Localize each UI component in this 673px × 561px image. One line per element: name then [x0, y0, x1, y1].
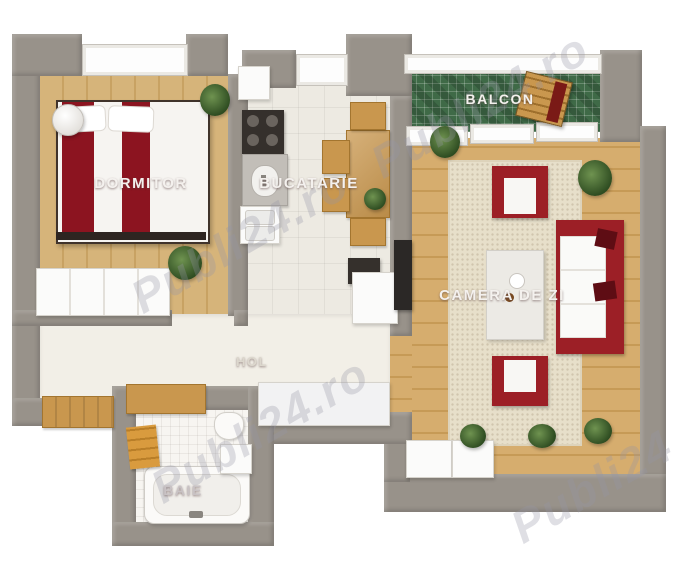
fridge — [238, 66, 270, 100]
sofa-pillow-2 — [593, 281, 617, 302]
dining-chair-left-1 — [322, 140, 350, 174]
lounger-blanket — [546, 81, 567, 123]
plant-living-bottom-2 — [528, 424, 556, 448]
tv-wall-mounted — [394, 240, 412, 310]
balcony-door-2 — [470, 124, 534, 144]
room-label-baie: BAIE — [163, 482, 202, 498]
double-sink — [240, 206, 280, 244]
plant-bedroom-corner — [200, 84, 230, 116]
bedroom-window — [82, 44, 188, 76]
towel — [126, 425, 160, 470]
sofa — [556, 220, 624, 354]
exterior-notch — [274, 444, 384, 561]
room-label-hol: HOL — [236, 354, 268, 369]
wardrobe — [36, 268, 170, 316]
bed-pillow-right — [108, 105, 155, 133]
armchair-top — [492, 166, 548, 218]
stove-burner-3 — [247, 134, 259, 146]
balcony-door-3 — [536, 122, 598, 142]
stove-burner-4 — [266, 134, 278, 146]
toilet — [214, 412, 244, 440]
bathroom-sink — [220, 444, 252, 474]
stove-burner-2 — [266, 115, 278, 127]
bedside-lamp — [52, 104, 84, 136]
armchair-bottom — [492, 356, 548, 406]
room-label-camera-de-zi: CAMERA DE ZI — [439, 287, 565, 304]
dining-chair-top — [350, 102, 386, 130]
plant-bedroom-wardrobe — [168, 246, 202, 280]
armchair-top-seat — [504, 178, 536, 214]
plant-living-door — [430, 126, 460, 158]
sofa-pillow-1 — [594, 228, 617, 250]
plant-living-bottom-1 — [460, 424, 486, 448]
sink-bowl-2 — [245, 226, 275, 241]
bed-footboard — [56, 232, 206, 240]
room-label-bucatarie: BUCATARIE — [259, 175, 359, 192]
plant-kitchen — [364, 188, 386, 210]
balcony-railing — [404, 54, 602, 74]
stove — [242, 110, 284, 154]
wall-top-bedroom-left — [12, 34, 82, 76]
sink-bowl-1 — [245, 210, 275, 225]
wall-top-bedroom-right — [186, 34, 228, 76]
wall-living-right — [640, 126, 666, 478]
plant-living-bottom-3 — [584, 418, 612, 444]
plant-living-topright — [578, 160, 612, 196]
entry-sideboard — [258, 382, 390, 426]
bathtub-faucet — [189, 511, 203, 518]
bathroom-door — [126, 384, 206, 414]
living-cabinet-1 — [406, 440, 452, 478]
hall-bench — [42, 396, 114, 428]
kitchen-window — [296, 54, 348, 86]
room-label-dormitor: DORMITOR — [94, 175, 187, 192]
wall-bedroom-hall-b — [234, 310, 248, 326]
wall-kitchen-topright — [346, 34, 412, 96]
living-doorway-floor — [390, 336, 412, 420]
room-label-balcon: BALCON — [466, 91, 535, 107]
kitchen-dresser — [352, 272, 398, 324]
wall-living-bottom — [384, 474, 666, 512]
floor-plan: DORMITOR BUCATARIE BALCON CAMERA DE ZI H… — [0, 0, 673, 561]
stove-burner-1 — [247, 115, 259, 127]
wall-balcony-right — [600, 50, 642, 142]
bathroom-wall-bottom — [112, 522, 274, 546]
wall-left — [12, 34, 40, 426]
dining-chair-bottom — [350, 218, 386, 246]
armchair-bottom-seat — [504, 360, 536, 392]
